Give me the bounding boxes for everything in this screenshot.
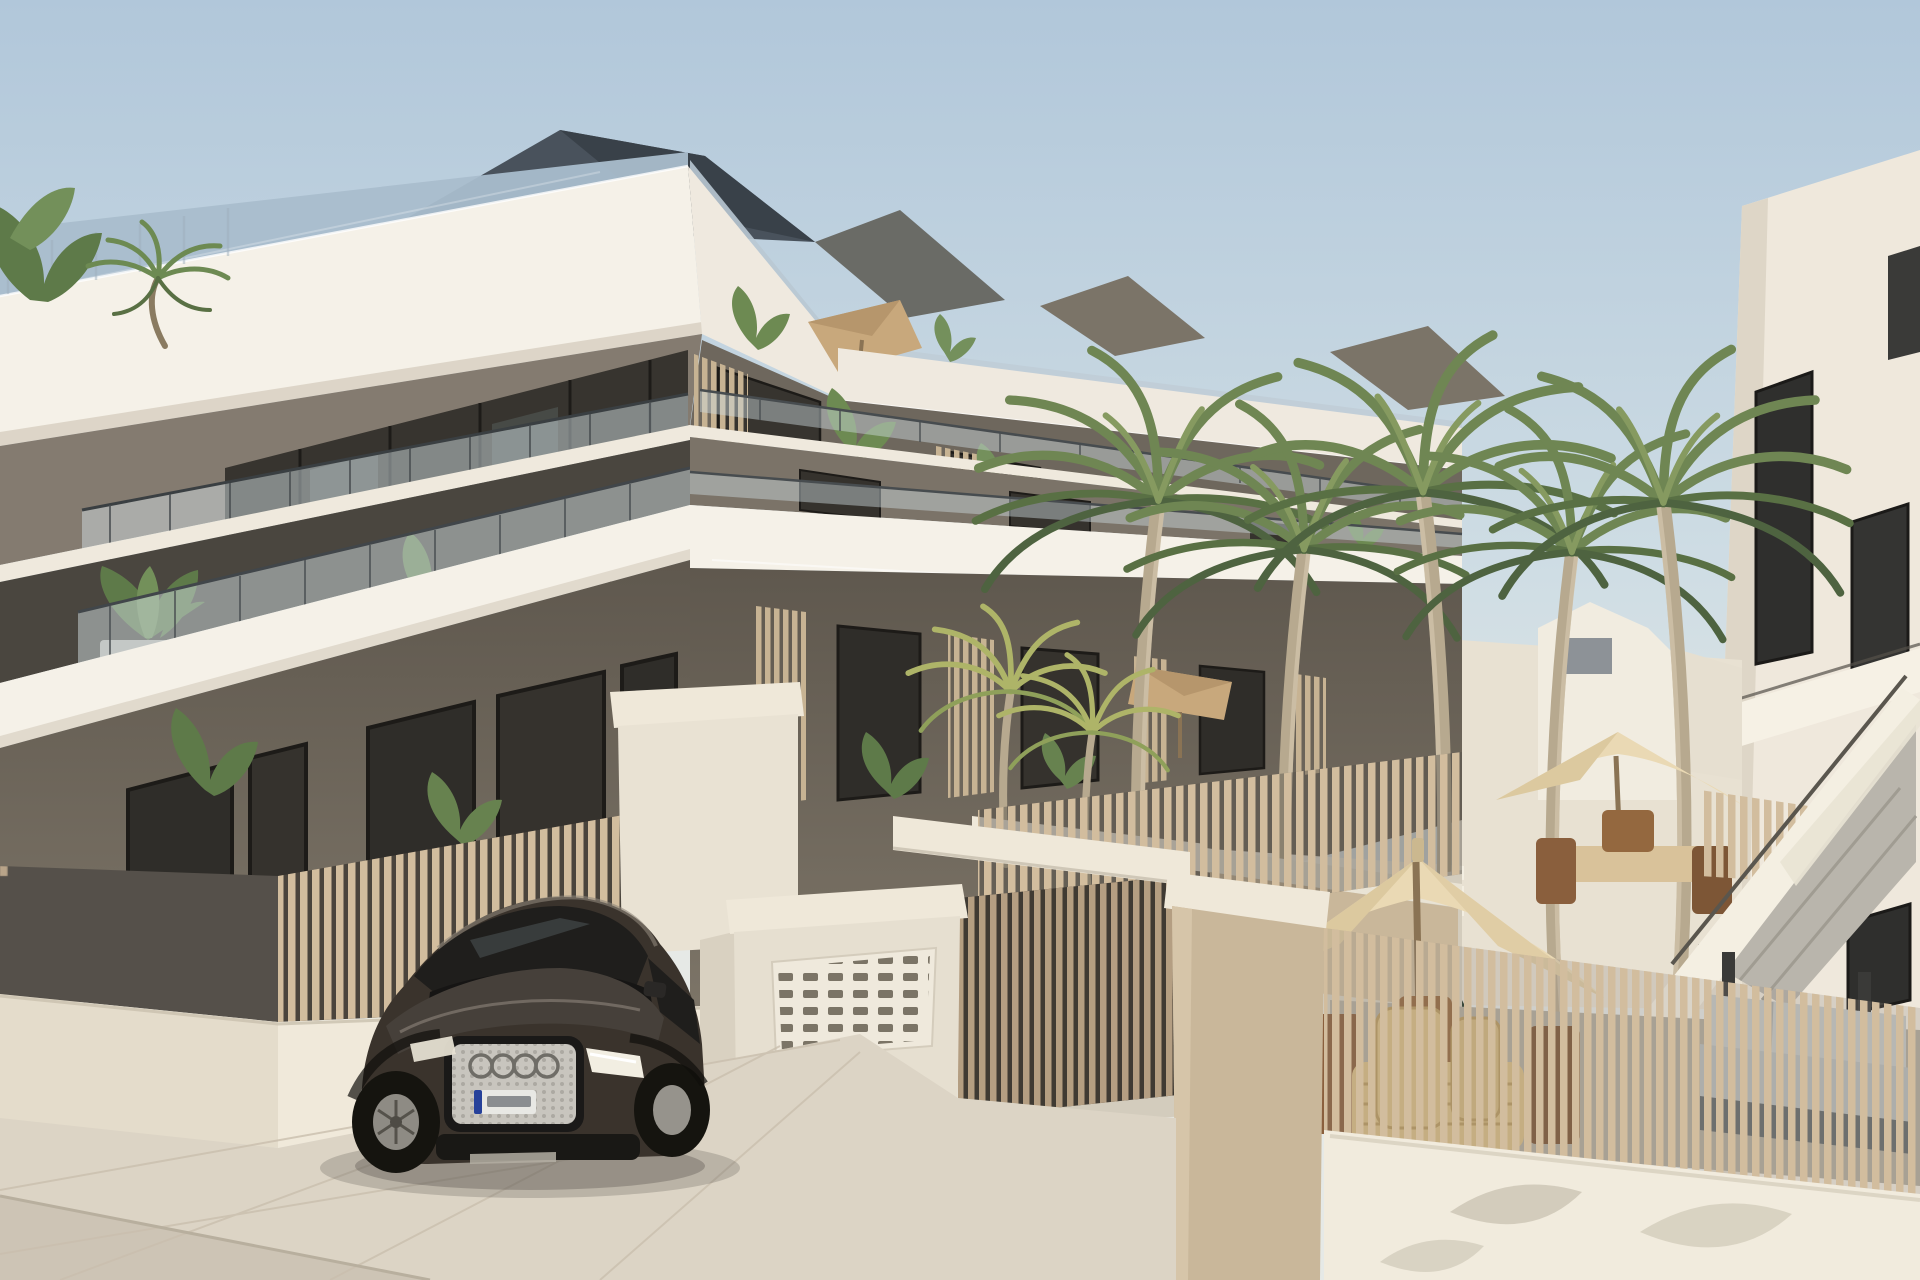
background-house-window [1564, 638, 1612, 674]
license-plate [474, 1090, 536, 1114]
entry-beige-pillar [1164, 872, 1330, 1280]
right-building-window [1756, 372, 1812, 664]
side-mirror [643, 981, 667, 999]
privacy-screen [1296, 674, 1326, 776]
privacy-screen [948, 634, 994, 798]
right-building-window [1888, 246, 1920, 360]
plate-text-blur [487, 1096, 531, 1107]
gate [958, 876, 1178, 1118]
dining-chair [1602, 810, 1654, 852]
render-canvas [0, 0, 1920, 1280]
architectural-render [0, 0, 1920, 1280]
skid-plate [470, 1152, 556, 1164]
dining-chair [1536, 838, 1576, 904]
